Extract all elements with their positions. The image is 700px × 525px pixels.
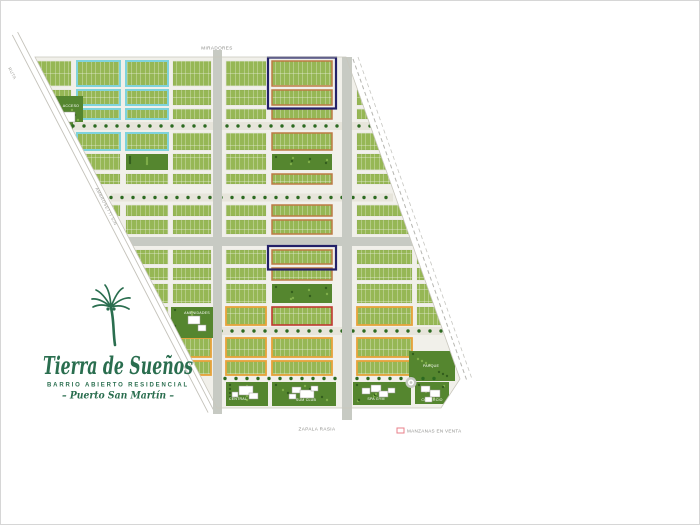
residential-block — [272, 338, 332, 357]
park-tree-dot — [421, 360, 423, 362]
boulevard-tree — [252, 329, 255, 332]
residential-block — [77, 133, 120, 150]
residential-block — [226, 174, 266, 184]
park-tree-dot — [308, 161, 310, 163]
residential-block — [417, 90, 471, 105]
residential-block — [173, 61, 211, 86]
park-tree-dot — [308, 289, 310, 291]
boulevard-tree — [280, 124, 283, 127]
boulevard-tree — [373, 329, 376, 332]
residential-block — [21, 268, 71, 280]
residential-block — [77, 154, 120, 170]
boulevard-tree — [432, 377, 435, 380]
boulevard-tree — [203, 124, 206, 127]
residential-block — [173, 109, 211, 119]
logo-subtitle: BARRIO ABIERTO RESIDENCIAL — [47, 382, 189, 389]
residential-block — [357, 205, 412, 216]
amenity-sum-label: SUM CLUB — [296, 398, 317, 402]
amenities-left-label: AMENIDADES — [184, 311, 210, 315]
park-tree-dot — [325, 162, 327, 164]
boulevard-tree — [142, 196, 145, 199]
residential-block — [357, 154, 412, 170]
boulevard-tree — [302, 124, 305, 127]
residential-block — [417, 307, 471, 325]
residential-block — [417, 61, 471, 86]
boulevard-tree — [153, 196, 156, 199]
residential-block — [126, 90, 168, 105]
boulevard-tree — [421, 377, 424, 380]
boulevard-tree — [274, 196, 277, 199]
boulevard-tree — [388, 377, 391, 380]
residential-block — [21, 284, 71, 303]
residential-block — [357, 174, 412, 184]
residential-block — [272, 205, 332, 216]
building — [311, 386, 318, 391]
residential-block — [272, 109, 332, 119]
residential-block — [21, 220, 71, 234]
portal-label: ACCESO — [63, 104, 79, 108]
park-tree-dot — [326, 293, 328, 295]
amenity-comercio-label: COMERCIO — [421, 398, 442, 402]
boulevard-tree — [296, 196, 299, 199]
residential-block — [226, 268, 266, 280]
residential-block — [272, 361, 332, 375]
boulevard-tree — [362, 329, 365, 332]
boulevard-tree — [109, 196, 112, 199]
boulevard-tree — [148, 124, 151, 127]
residential-block — [77, 250, 120, 264]
boulevard-tree — [137, 124, 140, 127]
residential-block — [272, 174, 332, 184]
boulevard-tree — [181, 124, 184, 127]
boulevard-tree — [93, 124, 96, 127]
boulevard-tree — [175, 196, 178, 199]
park-tree-dot — [375, 393, 377, 395]
amenity-central-label: CENTRAL — [229, 397, 247, 401]
park-tree-dot — [275, 156, 277, 158]
building — [388, 388, 395, 393]
building — [362, 388, 370, 394]
logo-location: – Puerto San Martín – — [62, 390, 174, 402]
boulevard-tree — [267, 377, 270, 380]
residential-block — [226, 90, 266, 105]
residential-block — [21, 174, 71, 184]
boulevard-tree — [159, 124, 162, 127]
residential-block — [357, 268, 412, 280]
boulevard-tree — [269, 124, 272, 127]
boulevard-tree — [274, 329, 277, 332]
residential-block — [417, 220, 471, 234]
corner-park-label: PARQUE — [423, 364, 440, 368]
park-tree-dot — [309, 295, 311, 297]
boulevard-tree — [241, 329, 244, 332]
boulevard-tree — [377, 377, 380, 380]
residential-block — [272, 61, 332, 86]
boulevard-tree — [329, 196, 332, 199]
residential-block — [77, 90, 120, 105]
park-tree-dot — [229, 388, 231, 390]
boulevard-tree — [296, 329, 299, 332]
park-tree-dot — [418, 384, 420, 386]
boulevard-tree — [373, 196, 376, 199]
boulevard-tree — [318, 196, 321, 199]
boulevard-tree — [236, 124, 239, 127]
boulevard-tree — [258, 124, 261, 127]
boulevard-tree — [307, 329, 310, 332]
park-tree-dot — [275, 286, 277, 288]
residential-block — [226, 338, 266, 357]
boulevard-tree — [230, 196, 233, 199]
boulevard-tree — [333, 377, 336, 380]
park-tree-dot — [282, 389, 284, 391]
park-tree-dot — [309, 158, 311, 160]
boulevard-tree — [417, 329, 420, 332]
legend-swatch — [397, 428, 404, 433]
residential-block — [417, 250, 471, 264]
park-tree-dot — [292, 157, 294, 159]
residential-block — [272, 307, 332, 325]
residential-block — [272, 133, 332, 150]
building — [188, 316, 200, 324]
roundabout — [406, 377, 417, 388]
residential-block — [272, 90, 332, 105]
residential-block — [417, 174, 471, 184]
boulevard-tree — [263, 196, 266, 199]
boulevard-tree — [313, 124, 316, 127]
corner-road-label: RUTA — [7, 66, 17, 80]
boulevard-tree — [164, 196, 167, 199]
park-tree-dot — [174, 309, 176, 311]
park-tree-dot — [174, 331, 176, 333]
boulevard-tree — [197, 196, 200, 199]
boulevard-tree — [278, 377, 281, 380]
boulevard-tree — [324, 124, 327, 127]
avenue-horizontal — [121, 237, 421, 246]
residential-block — [417, 109, 471, 119]
boulevard-tree — [307, 196, 310, 199]
park-tree-dot — [290, 163, 292, 165]
boulevard-tree — [384, 329, 387, 332]
residential-block — [417, 154, 471, 170]
palm-tree-icon — [92, 285, 130, 345]
residential-block — [173, 284, 211, 303]
residential-block — [173, 205, 211, 216]
residential-block — [126, 220, 168, 234]
boulevard-tree — [120, 196, 123, 199]
boulevard-tree — [225, 124, 228, 127]
boulevard-tree — [285, 329, 288, 332]
residential-block — [21, 61, 71, 86]
residential-block — [126, 268, 168, 280]
residential-block — [21, 250, 71, 264]
residential-block — [226, 154, 266, 170]
bottom-road-label: ZAPALA RASIA — [299, 427, 336, 432]
park-tree-dot — [291, 160, 293, 162]
building — [292, 387, 301, 393]
boulevard-tree — [131, 196, 134, 199]
park-tree-dot — [304, 385, 306, 387]
residential-block — [173, 90, 211, 105]
residential-block — [21, 154, 71, 170]
logo-title: Tierra de Sueños — [43, 351, 193, 380]
residential-block — [173, 220, 211, 234]
boulevard-tree — [406, 329, 409, 332]
residential-block — [77, 61, 120, 86]
residential-block — [226, 250, 266, 264]
residential-block — [226, 361, 266, 375]
park-block — [272, 284, 332, 303]
boulevard-tree — [285, 196, 288, 199]
residential-block — [173, 250, 211, 264]
legend: MANZANAS EN VENTA — [397, 428, 462, 434]
residential-block — [126, 133, 168, 150]
building — [64, 112, 75, 122]
boulevard-tree — [241, 196, 244, 199]
residential-block — [417, 268, 471, 280]
boulevard-tree — [223, 377, 226, 380]
residential-block — [126, 250, 168, 264]
boulevard-tree — [311, 377, 314, 380]
residential-block — [357, 284, 412, 303]
residential-block — [357, 338, 412, 357]
park-tree-dot — [71, 109, 73, 111]
park-tree-dot — [326, 399, 328, 401]
boulevard-tree — [289, 377, 292, 380]
residential-block — [226, 284, 266, 303]
park-tree-dot — [54, 98, 56, 100]
avenue-vertical-west — [213, 50, 222, 414]
park-tree-dot — [442, 386, 444, 388]
park-tree-dot — [146, 163, 148, 165]
boulevard-tree — [335, 124, 338, 127]
boulevard-tree — [230, 329, 233, 332]
residential-block — [272, 220, 332, 234]
park-tree-dot — [275, 384, 277, 386]
residential-block — [126, 284, 168, 303]
boulevard-tree — [256, 377, 259, 380]
boulevard-tree — [234, 377, 237, 380]
residential-block — [77, 109, 120, 119]
building — [430, 390, 440, 397]
residential-block — [417, 284, 471, 303]
residential-block — [357, 361, 412, 375]
park-tree-dot — [325, 287, 327, 289]
boulevard-tree — [208, 196, 211, 199]
boulevard-tree — [428, 329, 431, 332]
boulevard-tree — [263, 329, 266, 332]
residential-block — [272, 250, 332, 264]
residential-block — [226, 205, 266, 216]
park-tree-dot — [321, 396, 323, 398]
boulevard-tree — [186, 196, 189, 199]
boulevard-tree — [291, 124, 294, 127]
park-tree-dot — [291, 291, 293, 293]
residential-block — [77, 268, 120, 280]
residential-block — [173, 154, 211, 170]
residential-block — [226, 133, 266, 150]
site-plan-map: ACCESO AMENIDADES CENTRAL SUM CLUB SPA G… — [1, 1, 700, 525]
boulevard-tree — [104, 124, 107, 127]
residential-block — [357, 250, 412, 264]
boulevard-tree — [126, 124, 129, 127]
building — [421, 386, 430, 392]
park-tree-dot — [326, 159, 328, 161]
park-tree-dot — [356, 384, 358, 386]
park-tree-dot — [358, 399, 360, 401]
residential-block — [357, 220, 412, 234]
residential-block — [126, 61, 168, 86]
boulevard-tree — [82, 124, 85, 127]
residential-block — [126, 205, 168, 216]
boulevard-tree — [252, 196, 255, 199]
park-tree-dot — [229, 392, 231, 394]
residential-block — [21, 133, 71, 150]
residential-block — [173, 268, 211, 280]
boulevard-tree — [170, 124, 173, 127]
building — [249, 393, 258, 399]
boulevard-tree — [384, 196, 387, 199]
boulevard-tree — [245, 377, 248, 380]
residential-block — [173, 133, 211, 150]
residential-block — [173, 174, 211, 184]
park-tree-dot — [290, 298, 292, 300]
boulevard-tree — [366, 377, 369, 380]
park-tree-dot — [129, 162, 131, 164]
residential-block — [417, 133, 471, 150]
residential-block — [417, 205, 471, 216]
park-tree-dot — [412, 353, 414, 355]
boulevard-tree — [355, 377, 358, 380]
boulevard-tree — [322, 377, 325, 380]
boulevard-tree — [329, 329, 332, 332]
boulevard-tree — [357, 124, 360, 127]
park-tree-dot — [77, 119, 79, 121]
residential-block — [21, 205, 71, 216]
avenue-vertical-east — [342, 57, 352, 420]
legend-label: MANZANAS EN VENTA — [407, 429, 462, 434]
residential-block — [21, 307, 71, 325]
residential-block — [226, 220, 266, 234]
park-tree-dot — [438, 371, 440, 373]
park-tree-dot — [442, 373, 444, 375]
park-tree-dot — [446, 375, 448, 377]
boulevard-tree — [318, 329, 321, 332]
residential-block — [226, 109, 266, 119]
boulevard-tree — [192, 124, 195, 127]
boulevard-tree — [362, 196, 365, 199]
boulevard-tree — [399, 377, 402, 380]
residential-block — [126, 174, 168, 184]
boulevard-tree — [247, 124, 250, 127]
residential-block — [357, 307, 412, 325]
amenity-spa-label: SPA GYM — [367, 397, 384, 401]
residential-block — [357, 61, 412, 86]
park-tree-dot — [417, 358, 419, 360]
residential-block — [226, 307, 266, 325]
top-road-label: MIRADORES — [201, 46, 232, 51]
boulevard-tree — [115, 124, 118, 127]
park-tree-dot — [229, 384, 231, 386]
building — [198, 325, 206, 331]
park-block — [272, 154, 332, 170]
site-plan-canvas: ACCESO AMENIDADES CENTRAL SUM CLUB SPA G… — [0, 0, 700, 525]
boulevard-tree — [395, 329, 398, 332]
residential-block — [226, 61, 266, 86]
residential-block — [126, 109, 168, 119]
boulevard-tree — [300, 377, 303, 380]
